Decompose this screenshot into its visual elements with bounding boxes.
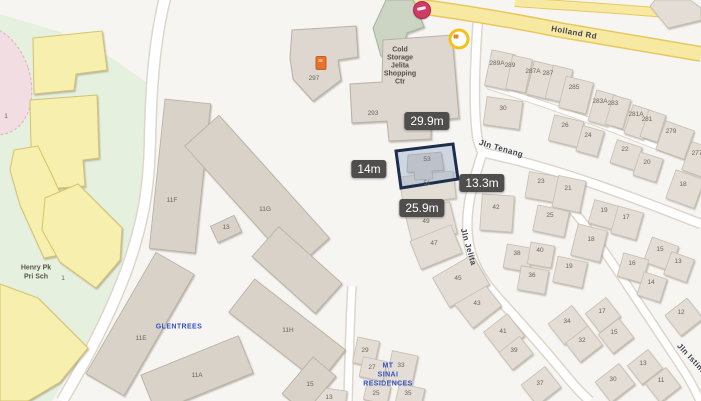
map-canvas[interactable]: 289A289287A287285283A283281A281279277302… — [0, 0, 701, 401]
selected-lot-outline[interactable] — [396, 144, 458, 188]
building-shape[interactable] — [517, 266, 549, 294]
yellow-poi-icon[interactable] — [449, 29, 470, 50]
shop-poi-icon[interactable] — [316, 56, 327, 70]
building-shape[interactable] — [386, 351, 418, 386]
building-shape[interactable] — [480, 194, 514, 232]
building-shape[interactable] — [552, 175, 586, 212]
building-shape[interactable] — [527, 242, 554, 268]
building-shape[interactable] — [483, 97, 523, 130]
map-base-layer — [0, 0, 701, 401]
building-shape[interactable] — [553, 256, 588, 288]
red-poi-icon[interactable] — [413, 1, 431, 19]
